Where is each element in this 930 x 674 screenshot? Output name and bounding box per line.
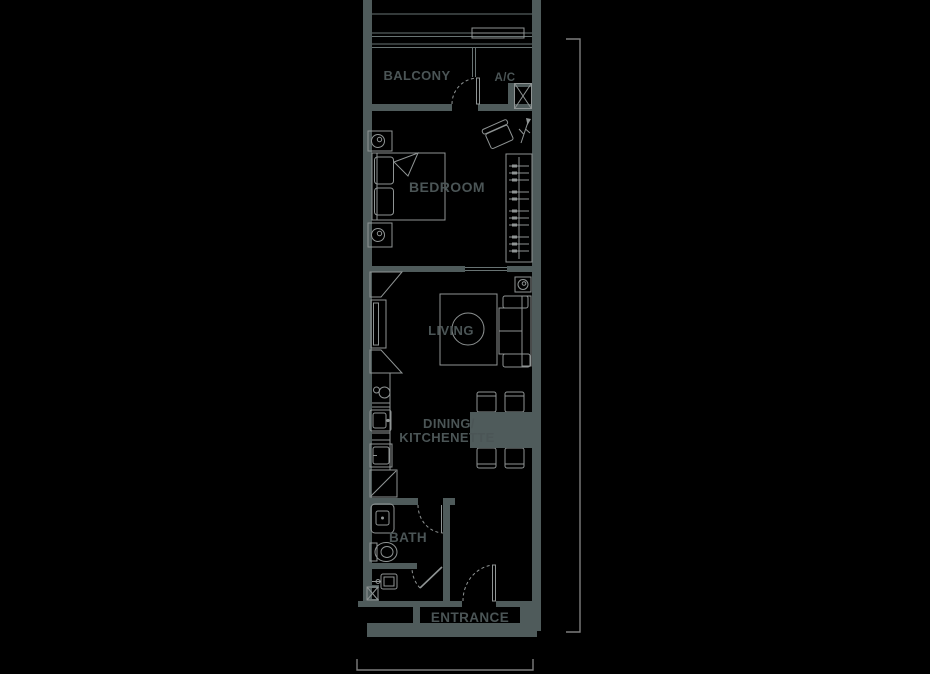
sofa-arm-bottom [503,354,530,367]
apartment-floor-plan: BALCONY A/C [0,0,930,674]
balcony-door-swing-arc [452,78,478,104]
floor-plan-canvas: BALCONY A/C [0,0,930,674]
sofa [499,296,531,367]
entrance-door [463,565,496,601]
dining-chair [505,448,524,468]
bedroom-label: BEDROOM [409,179,485,195]
bath-vanity-sink [371,504,394,533]
bedroom-sliding-door [465,268,507,271]
right-wall [532,0,541,631]
wardrobe-closet [506,154,532,262]
plant-icon [519,118,531,143]
tv-console [370,272,402,373]
bedroom-chair [482,119,515,150]
kitchen-sink [370,410,391,431]
shower-door [412,567,442,588]
dimension-lines [357,39,580,670]
bath-mid-wall [372,563,417,569]
sofa-arm-top [503,296,528,308]
entry-nook-wall [413,601,420,629]
walls [358,0,541,637]
appliance [370,444,392,467]
bottom-dimension-bracket [357,659,533,670]
bath-door-swing-arc [418,505,443,533]
bottom-outer-wall [367,623,537,637]
shower-door-swing-arc [412,568,420,588]
faucet-icon [381,517,384,520]
balcony-label: BALCONY [383,68,450,83]
balcony-wall-left [363,104,452,111]
side-table-lamp [515,277,531,292]
living-zone: LIVING [370,272,531,373]
shower-door-leaf [420,567,442,588]
corner-cabinet [370,470,397,497]
shaft-wall [508,83,515,109]
balcony-door-leaf [477,78,480,104]
balcony-ac-divider [473,48,476,77]
toilet [370,543,397,562]
dining-label-line2: KITCHENETTE [399,430,494,445]
dining-chair [505,392,524,412]
corner-wall-block [520,601,537,630]
bedroom-living-wall-left [363,266,465,272]
cooktop [374,387,391,398]
blanket-fold [394,153,418,176]
balcony-railing [372,33,532,48]
entrance-label: ENTRANCE [431,610,509,625]
kitchenette [370,373,397,497]
dining-chair [477,392,496,412]
ac-shaft-hatch-icon [514,83,532,109]
dining-chair [477,448,496,468]
burner [379,387,390,398]
ac-label: A/C [494,72,515,84]
hanger-knobs [512,165,517,253]
dining-zone: DINING/ KITCHENETTE [399,392,533,468]
bath-side-wall [443,498,450,607]
faucet-icon [386,419,389,422]
balcony-door [452,78,480,104]
living-label: LIVING [428,323,474,338]
entrance-door-swing-arc [463,565,493,601]
bedroom-zone: BEDROOM [368,118,532,262]
bath-zone: BATH [366,504,443,602]
entrance-zone: ENTRANCE [431,565,509,625]
dining-label-line1: DINING/ [423,416,475,431]
bath-door [418,505,443,533]
entrance-door-leaf [493,565,496,601]
toilet-bowl [375,543,397,562]
bath-label: BATH [389,530,427,545]
bedroom-living-wall-right [507,266,541,272]
right-dimension-bracket [566,39,580,632]
